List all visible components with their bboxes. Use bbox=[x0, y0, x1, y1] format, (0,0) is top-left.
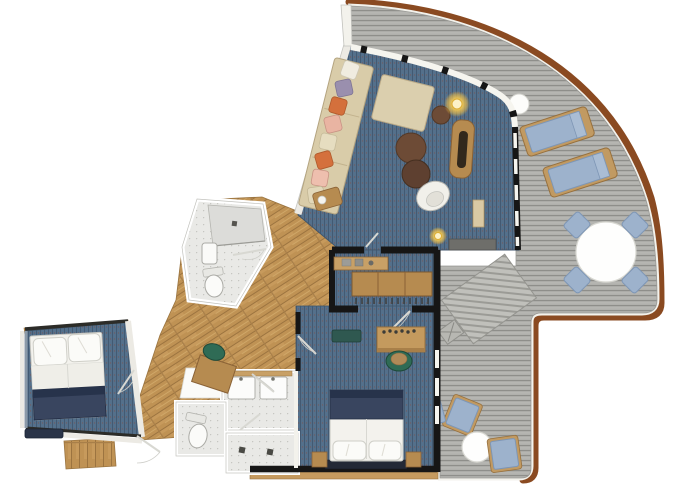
wardrobe bbox=[352, 272, 432, 296]
window-bench-wood bbox=[64, 438, 116, 469]
floor-lamp bbox=[452, 99, 462, 109]
bath2-sink bbox=[202, 243, 217, 264]
entry-door-arc bbox=[137, 452, 160, 463]
pillow-pink-1 bbox=[323, 114, 342, 133]
bath1-faucets bbox=[239, 377, 243, 381]
bed2-pillow-2 bbox=[68, 333, 101, 362]
master-pillow-2 bbox=[369, 441, 401, 460]
bath2-shower-drain bbox=[232, 221, 238, 227]
floor-plan bbox=[0, 0, 680, 491]
nightstand-left bbox=[312, 452, 327, 467]
media-console bbox=[449, 239, 496, 250]
pillow-pink-2 bbox=[311, 169, 330, 188]
vanity-bottles bbox=[394, 330, 397, 333]
bedroom2-bench bbox=[25, 429, 63, 438]
bath1-drain-2 bbox=[267, 449, 274, 456]
master-duvet-fold bbox=[330, 390, 403, 398]
vanity-chair-seat bbox=[391, 353, 407, 365]
nightstand-right bbox=[406, 452, 421, 467]
coffee-table-1 bbox=[396, 133, 426, 163]
deck-chair-b-cushion bbox=[490, 438, 519, 469]
pillow-purple bbox=[335, 79, 354, 98]
bed2-pillow-1 bbox=[33, 337, 67, 366]
bath1-counter bbox=[226, 371, 292, 376]
table-lamp bbox=[435, 233, 442, 240]
master-bench bbox=[332, 330, 361, 342]
master-pillow-1 bbox=[333, 441, 366, 460]
side-table-lamp bbox=[318, 196, 326, 204]
tv-cabinet bbox=[473, 200, 484, 227]
pillow-cream bbox=[319, 133, 338, 152]
vanity-bottles bbox=[400, 329, 403, 332]
vanity-bottles bbox=[406, 330, 409, 333]
minibar-item-1 bbox=[342, 259, 351, 266]
bath1-drain-1 bbox=[239, 447, 246, 454]
bath1-faucets bbox=[271, 377, 275, 381]
minibar-item-2 bbox=[355, 259, 363, 266]
deck-west-wall bbox=[341, 5, 352, 46]
floor-plan-svg bbox=[0, 0, 680, 491]
vanity-bottles bbox=[382, 330, 385, 333]
vanity-bottles bbox=[412, 329, 415, 332]
minibar-item-3 bbox=[369, 261, 374, 266]
vanity-bottles bbox=[388, 329, 391, 332]
